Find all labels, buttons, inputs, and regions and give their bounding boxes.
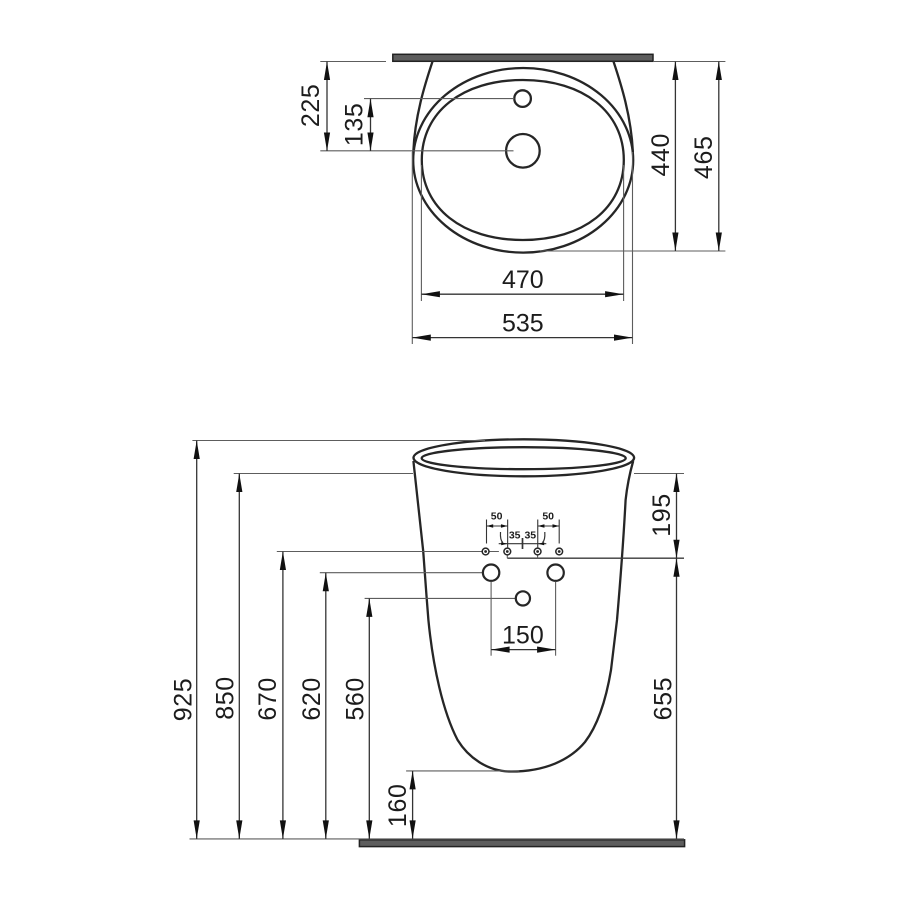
svg-text:655: 655 [649,677,677,721]
svg-text:160: 160 [384,784,412,828]
svg-text:470: 470 [502,266,544,294]
svg-text:50: 50 [491,511,503,523]
svg-text:135: 135 [341,103,369,147]
svg-text:925: 925 [169,678,197,722]
svg-text:225: 225 [297,84,325,128]
svg-text:35: 35 [524,529,536,541]
svg-text:440: 440 [647,133,675,177]
svg-text:670: 670 [254,677,282,721]
svg-text:150: 150 [502,622,544,650]
svg-text:195: 195 [648,493,676,537]
svg-text:465: 465 [690,136,718,180]
svg-text:50: 50 [542,511,554,523]
svg-text:535: 535 [502,309,544,337]
svg-text:620: 620 [298,677,326,721]
svg-text:850: 850 [211,676,239,720]
svg-text:560: 560 [341,677,369,721]
svg-text:35: 35 [509,529,521,541]
